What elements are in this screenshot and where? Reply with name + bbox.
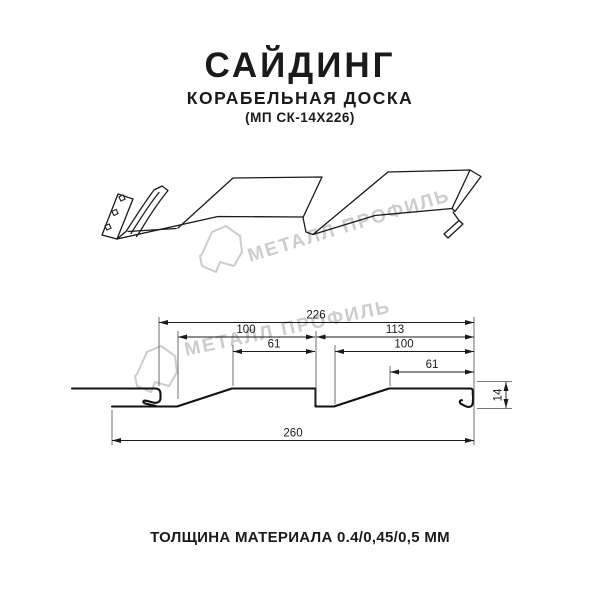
watermark-3d: МЕТАЛЛ ПРОФИЛЬ (200, 185, 453, 272)
arrow (335, 349, 344, 354)
end-flap (444, 221, 463, 239)
technical-drawing: МЕТАЛЛ ПРОФИЛЬ МЕТАЛЛ ПРОФИЛЬ (0, 0, 600, 600)
siding-product-sheet: САЙДИНГ КОРАБЕЛЬНАЯ ДОСКА (МП СК-14Х226)… (0, 0, 600, 600)
dimension-label-61-left: 61 (268, 339, 281, 351)
arrow (465, 349, 474, 354)
arrow (159, 320, 168, 325)
nail-hole (112, 209, 118, 215)
arrow (306, 335, 315, 340)
dimension-label-113: 113 (386, 324, 404, 336)
arrow (465, 438, 474, 443)
arrow (112, 438, 121, 443)
dimension-label-226: 226 (306, 310, 325, 322)
flange-outline (102, 194, 133, 239)
section-profile (112, 389, 473, 407)
dimension-label-61-right: 61 (426, 359, 439, 371)
hem-tip-connector (453, 212, 459, 221)
watermark-text: МЕТАЛЛ ПРОФИЛЬ (245, 185, 452, 267)
dimension-label-260: 260 (283, 428, 302, 440)
metall-profil-logo-icon (200, 226, 242, 272)
arrow (465, 335, 474, 340)
arrow (465, 370, 474, 375)
material-thickness-note: ТОЛЩИНА МАТЕРИАЛА 0.4/0,45/0,5 ММ (0, 529, 600, 546)
watermark-section: МЕТАЛЛ ПРОФИЛЬ (135, 297, 393, 392)
nail-hole (119, 195, 125, 201)
arrow (390, 370, 399, 375)
arrow (317, 335, 326, 340)
dimension-label-14: 14 (493, 388, 505, 401)
arrow (178, 335, 187, 340)
lock-rib-inner-line (131, 193, 159, 234)
dimension-label-100-right: 100 (394, 339, 413, 351)
nail-hole (105, 224, 111, 230)
metall-profil-logo-icon (135, 346, 177, 392)
arrow (306, 349, 315, 354)
arrow (465, 320, 474, 325)
dimension-label-100-left: 100 (236, 324, 255, 336)
